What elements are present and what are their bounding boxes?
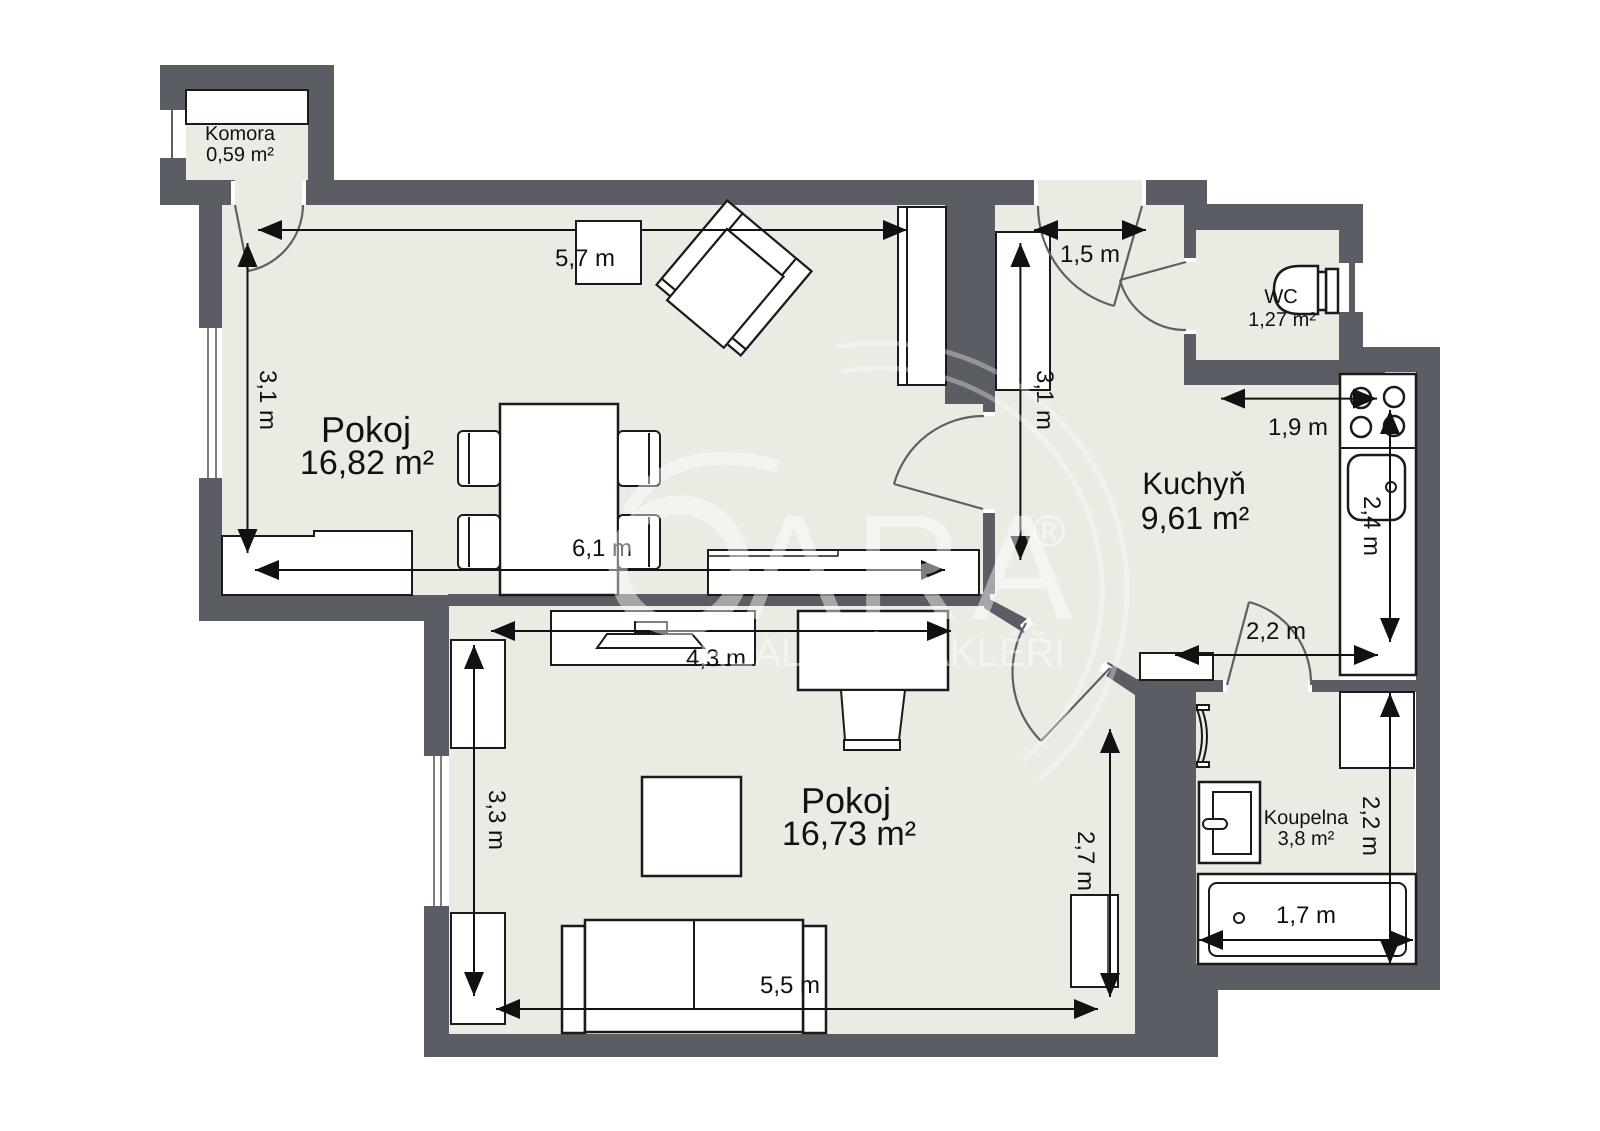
svg-text:1,9 m: 1,9 m <box>1268 414 1328 441</box>
svg-text:3,8 m²: 3,8 m² <box>1278 828 1335 850</box>
svg-text:5,7 m: 5,7 m <box>555 245 615 272</box>
svg-text:5,5 m: 5,5 m <box>760 972 820 999</box>
svg-text:2,4 m: 2,4 m <box>1358 496 1385 556</box>
svg-text:2,7 m: 2,7 m <box>1072 831 1099 891</box>
svg-text:1,7 m: 1,7 m <box>1276 902 1336 929</box>
svg-text:Koupelna: Koupelna <box>1264 807 1349 829</box>
svg-text:0,59 m²: 0,59 m² <box>206 144 274 166</box>
svg-text:16,73 m²: 16,73 m² <box>782 815 916 853</box>
svg-text:REALITNÍ MAKLÉŘI: REALITNÍ MAKLÉŘI <box>699 631 1066 675</box>
svg-text:1,5 m: 1,5 m <box>1060 241 1120 268</box>
svg-text:®: ® <box>1033 507 1065 556</box>
svg-text:3,3 m: 3,3 m <box>483 790 510 850</box>
svg-text:3,1 m: 3,1 m <box>254 370 281 430</box>
svg-text:2,2 m: 2,2 m <box>1246 618 1306 645</box>
svg-text:Komora: Komora <box>205 123 276 145</box>
svg-text:16,82 m²: 16,82 m² <box>300 444 434 482</box>
svg-text:1,27 m²: 1,27 m² <box>1248 309 1316 331</box>
svg-text:Kuchyň: Kuchyň <box>1142 466 1245 501</box>
svg-text:2,2 m: 2,2 m <box>1357 796 1384 856</box>
svg-text:WC: WC <box>1264 286 1297 308</box>
svg-text:9,61 m²: 9,61 m² <box>1141 500 1250 536</box>
svg-text:ARA: ARA <box>744 483 1082 651</box>
